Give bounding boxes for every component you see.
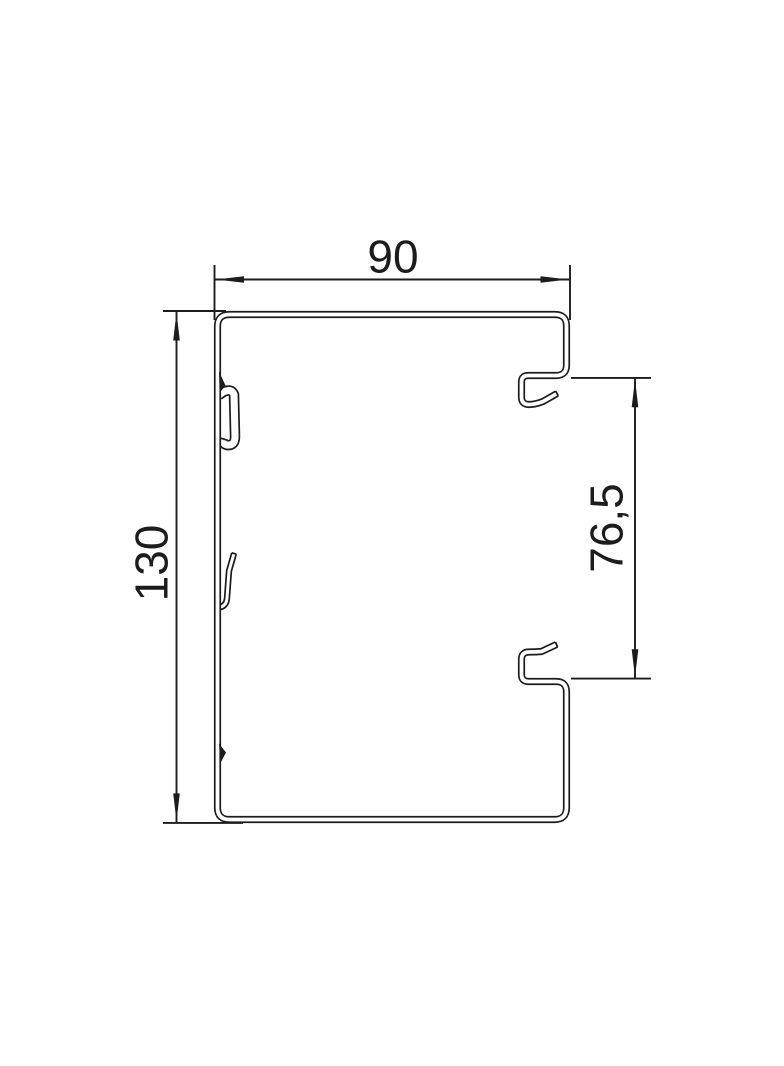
profile-outline — [218, 315, 567, 820]
opening-arrow-top — [632, 379, 639, 407]
profile-cross-section — [218, 315, 567, 820]
dimension-width: 90 — [215, 231, 571, 321]
width-arrow-left — [216, 276, 244, 283]
technical-drawing-canvas: 90 130 76,5 — [0, 0, 784, 1066]
height-dimension-label: 130 — [126, 525, 178, 602]
height-arrow-top — [173, 313, 180, 341]
height-arrow-bottom — [173, 793, 180, 821]
opening-arrow-bottom — [632, 649, 639, 677]
opening-dimension-label: 76,5 — [581, 483, 633, 573]
dimension-opening: 76,5 — [571, 378, 651, 679]
profile-sheet-fill — [218, 315, 567, 820]
width-dimension-label: 90 — [367, 231, 418, 283]
drawing-page: 90 130 76,5 — [0, 0, 784, 1066]
retainer-clip-lower — [219, 553, 237, 608]
width-arrow-right — [541, 276, 569, 283]
